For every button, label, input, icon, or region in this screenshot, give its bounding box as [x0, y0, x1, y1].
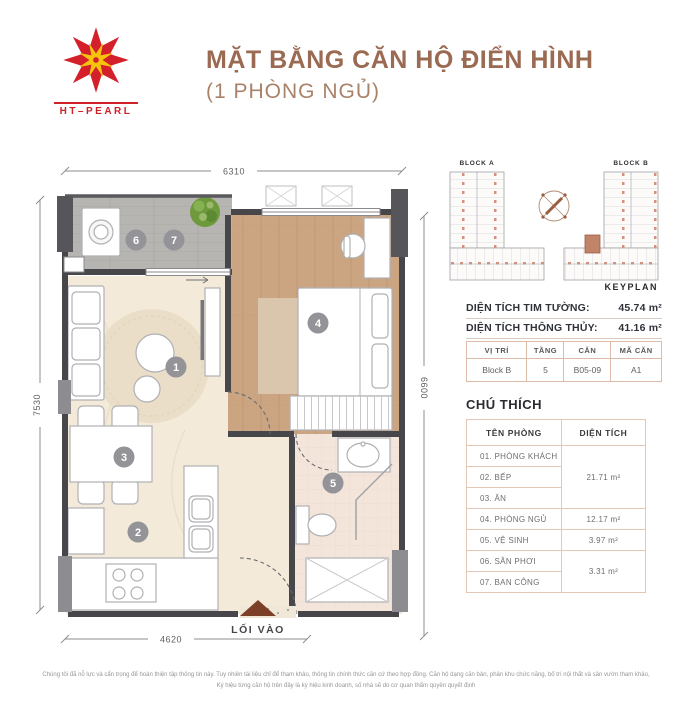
net-area-label: DIỆN TÍCH THÔNG THỦY: [466, 322, 598, 334]
svg-text:5: 5 [330, 478, 336, 490]
area-balcony-group: 3.31 m² [561, 551, 645, 593]
cell-floor: 5 [527, 359, 564, 382]
disclaimer-line-1: Chúng tôi đã nỗ lực và cẩn trọng để hoàn… [0, 670, 692, 681]
disclaimer: Chúng tôi đã nỗ lực và cẩn trọng để hoàn… [0, 670, 692, 693]
keyplan-label: KEYPLAN [604, 282, 658, 292]
net-area-value: 41.16 m² [618, 322, 662, 334]
side-table [134, 376, 160, 402]
block-a-label: BLOCK A [460, 160, 495, 167]
marker-dining: 3 [114, 447, 135, 468]
dim-bottom: 4620 [160, 635, 182, 645]
svg-text:4: 4 [315, 318, 322, 330]
keyplan-units [450, 172, 658, 280]
marker-balcony: 7 [164, 230, 185, 251]
svg-text:2: 2 [135, 527, 141, 539]
floor-plan: LỐI VÀO 6310 4620 7530 6600 1 2 3 4 5 6 [18, 158, 438, 658]
marker-laundry: 6 [126, 230, 147, 251]
cell-unit-code: A1 [611, 359, 662, 382]
room-dining: 03. ĂN [467, 488, 562, 509]
logo-wordmark: HT–PEARL [52, 106, 140, 117]
gross-area-label: DIỆN TÍCH TIM TƯỜNG: [466, 302, 590, 314]
room-kitchen: 02. BẾP [467, 467, 562, 488]
stove [106, 564, 156, 602]
sunburst-logo-icon [60, 24, 132, 96]
plant-icon [190, 197, 220, 227]
room-living: 01. PHÒNG KHÁCH [467, 446, 562, 467]
room-bedroom: 04. PHÒNG NGỦ [467, 509, 562, 530]
marker-living: 1 [166, 357, 187, 378]
svg-text:6: 6 [133, 235, 139, 247]
svg-text:3: 3 [121, 452, 127, 464]
legend-col-area: DIỆN TÍCH [561, 420, 645, 446]
entry-label: LỐI VÀO [231, 622, 285, 636]
area-bedroom: 12.17 m² [561, 509, 645, 530]
marker-kitchen: 2 [128, 522, 149, 543]
marker-bedroom: 4 [308, 313, 329, 334]
col-unit-code: MÃ CĂN [611, 342, 662, 359]
page-title: MẶT BẰNG CĂN HỘ ĐIỂN HÌNH [206, 46, 676, 75]
legend-row: 05. VỆ SINH 3.97 m² [467, 530, 646, 551]
area-living-group: 21.71 m² [561, 446, 645, 509]
highlighted-unit [585, 235, 600, 253]
svg-text:7: 7 [171, 235, 177, 247]
unit-info-row: Block B 5 B05-09 A1 [467, 359, 662, 382]
dim-top: 6310 [223, 167, 245, 177]
area-bathroom: 3.97 m² [561, 530, 645, 551]
brochure-page: HT–PEARL MẶT BẰNG CĂN HỘ ĐIỂN HÌNH (1 PH… [0, 0, 692, 720]
page-header: MẶT BẰNG CĂN HỘ ĐIỂN HÌNH (1 PHÒNG NGỦ) [206, 46, 676, 104]
unit-info-table: VỊ TRÍ TẦNG CĂN MÃ CĂN Block B 5 B05-09 … [466, 341, 662, 382]
col-unit: CĂN [564, 342, 611, 359]
legend-table: TÊN PHÒNG DIỆN TÍCH 01. PHÒNG KHÁCH 21.7… [466, 419, 646, 593]
logo-divider [54, 102, 138, 104]
washing-machine [82, 208, 120, 256]
cell-unit: B05-09 [564, 359, 611, 382]
room-balcony: 07. BAN CÔNG [467, 572, 562, 593]
ht-pearl-logo: HT–PEARL [52, 24, 140, 117]
cell-position: Block B [467, 359, 527, 382]
svg-text:1: 1 [173, 362, 179, 374]
dim-left: 7530 [32, 394, 42, 416]
col-floor: TẦNG [527, 342, 564, 359]
wardrobe [290, 396, 392, 430]
marker-bathroom: 5 [323, 473, 344, 494]
legend-row: 01. PHÒNG KHÁCH 21.71 m² [467, 446, 646, 467]
net-area-row: DIỆN TÍCH THÔNG THỦY: 41.16 m² [466, 319, 662, 339]
room-bathroom: 05. VỆ SINH [467, 530, 562, 551]
disclaimer-line-2: Ký hiệu từng căn hộ trên đây là ký hiệu … [0, 681, 692, 692]
dim-right: 6600 [419, 377, 429, 399]
page-subtitle: (1 PHÒNG NGỦ) [206, 80, 676, 104]
room-laundry: 06. SÂN PHƠI [467, 551, 562, 572]
legend-title: CHÚ THÍCH [466, 397, 542, 412]
legend-row: 04. PHÒNG NGỦ 12.17 m² [467, 509, 646, 530]
gross-area-value: 45.74 m² [618, 302, 662, 314]
area-summary: DIỆN TÍCH TIM TƯỜNG: 45.74 m² DIỆN TÍCH … [466, 299, 662, 339]
sofa [68, 286, 104, 400]
legend-row: 06. SÂN PHƠI 3.31 m² [467, 551, 646, 572]
legend-col-room: TÊN PHÒNG [467, 420, 562, 446]
bed [298, 288, 392, 396]
gross-area-row: DIỆN TÍCH TIM TƯỜNG: 45.74 m² [466, 299, 662, 319]
block-b-label: BLOCK B [613, 160, 648, 167]
col-position: VỊ TRÍ [467, 342, 527, 359]
keyplan: BLOCK A BLOCK B KEYPLAN [448, 152, 666, 292]
compass-icon [539, 191, 569, 221]
